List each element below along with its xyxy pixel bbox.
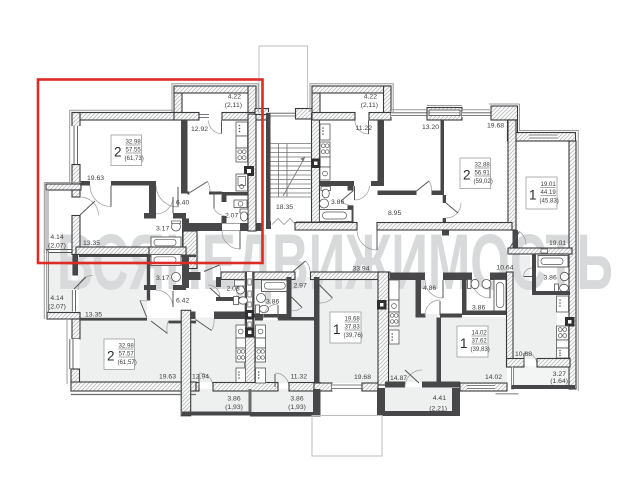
svg-text:4.41: 4.41 [433, 395, 446, 402]
svg-text:14.02: 14.02 [472, 330, 488, 337]
svg-text:12.94: 12.94 [192, 374, 209, 381]
svg-text:4.14: 4.14 [50, 234, 63, 241]
svg-text:(2,21): (2,21) [429, 406, 447, 413]
svg-text:3.86: 3.86 [544, 275, 557, 282]
svg-text:6.40: 6.40 [176, 200, 189, 207]
svg-text:12.92: 12.92 [191, 126, 208, 133]
svg-text:32.98: 32.98 [126, 139, 142, 146]
svg-text:3.86: 3.86 [266, 299, 279, 306]
svg-text:2.97: 2.97 [294, 283, 307, 290]
svg-text:18.35: 18.35 [276, 204, 293, 211]
svg-text:4.22: 4.22 [364, 94, 377, 101]
svg-text:(2,11): (2,11) [361, 102, 378, 109]
svg-text:(2,11): (2,11) [225, 102, 242, 109]
svg-text:2: 2 [107, 349, 115, 364]
svg-text:(61,57): (61,57) [118, 359, 137, 366]
svg-text:10.68: 10.68 [515, 351, 532, 358]
svg-text:4.14: 4.14 [50, 295, 63, 302]
svg-text:1: 1 [529, 188, 537, 203]
svg-text:33.94: 33.94 [352, 266, 369, 273]
svg-text:57.55: 57.55 [126, 147, 142, 154]
svg-text:19.01: 19.01 [541, 181, 557, 188]
svg-text:6.42: 6.42 [176, 298, 189, 305]
svg-text:19.63: 19.63 [159, 374, 176, 381]
svg-text:13.20: 13.20 [422, 124, 439, 131]
svg-text:14.87: 14.87 [390, 375, 407, 382]
svg-text:1: 1 [460, 336, 468, 351]
svg-text:(59,02): (59,02) [474, 178, 493, 185]
svg-text:44.19: 44.19 [541, 189, 557, 196]
svg-text:2.07: 2.07 [225, 213, 238, 220]
svg-text:37.83: 37.83 [345, 324, 361, 331]
svg-text:14.02: 14.02 [485, 374, 502, 381]
svg-text:3.86: 3.86 [472, 305, 485, 312]
svg-text:11.22: 11.22 [355, 125, 372, 132]
svg-text:(1,93): (1,93) [225, 404, 243, 411]
svg-text:11.32: 11.32 [290, 374, 307, 381]
svg-text:(61,73): (61,73) [125, 155, 144, 162]
svg-text:(2.07): (2.07) [48, 304, 66, 311]
svg-text:3.86: 3.86 [331, 199, 344, 206]
svg-text:32.88: 32.88 [475, 162, 491, 169]
svg-text:56.91: 56.91 [475, 170, 491, 177]
svg-text:2.08: 2.08 [227, 286, 240, 293]
svg-text:(1,93): (1,93) [288, 404, 306, 411]
svg-text:2: 2 [114, 145, 122, 160]
svg-text:(1.64): (1.64) [550, 378, 568, 385]
svg-text:13.35: 13.35 [83, 240, 100, 247]
svg-text:19.68: 19.68 [345, 316, 361, 323]
svg-text:(45,83): (45,83) [540, 198, 559, 205]
svg-text:32.98: 32.98 [119, 343, 135, 350]
svg-text:13.35: 13.35 [85, 312, 102, 319]
svg-text:2: 2 [463, 168, 471, 183]
svg-text:19.01: 19.01 [549, 240, 566, 247]
svg-text:(2,07): (2,07) [48, 243, 66, 250]
svg-text:57.57: 57.57 [119, 351, 135, 358]
svg-text:10.64: 10.64 [496, 265, 513, 272]
svg-text:(39,83): (39,83) [471, 346, 490, 353]
svg-text:3.86: 3.86 [227, 396, 240, 403]
svg-text:(39,76): (39,76) [344, 332, 363, 339]
svg-text:19.63: 19.63 [87, 175, 104, 182]
svg-text:8.95: 8.95 [388, 210, 401, 217]
svg-text:19.68: 19.68 [354, 374, 371, 381]
svg-text:1: 1 [333, 322, 341, 337]
svg-text:37.62: 37.62 [472, 338, 488, 345]
svg-text:4.22: 4.22 [228, 94, 241, 101]
svg-text:3.86: 3.86 [290, 396, 303, 403]
svg-text:3.17: 3.17 [156, 275, 169, 282]
svg-text:3.27: 3.27 [553, 371, 566, 378]
svg-text:19.68: 19.68 [487, 123, 504, 130]
svg-text:4.86: 4.86 [423, 285, 436, 292]
svg-text:3.17: 3.17 [156, 226, 169, 233]
